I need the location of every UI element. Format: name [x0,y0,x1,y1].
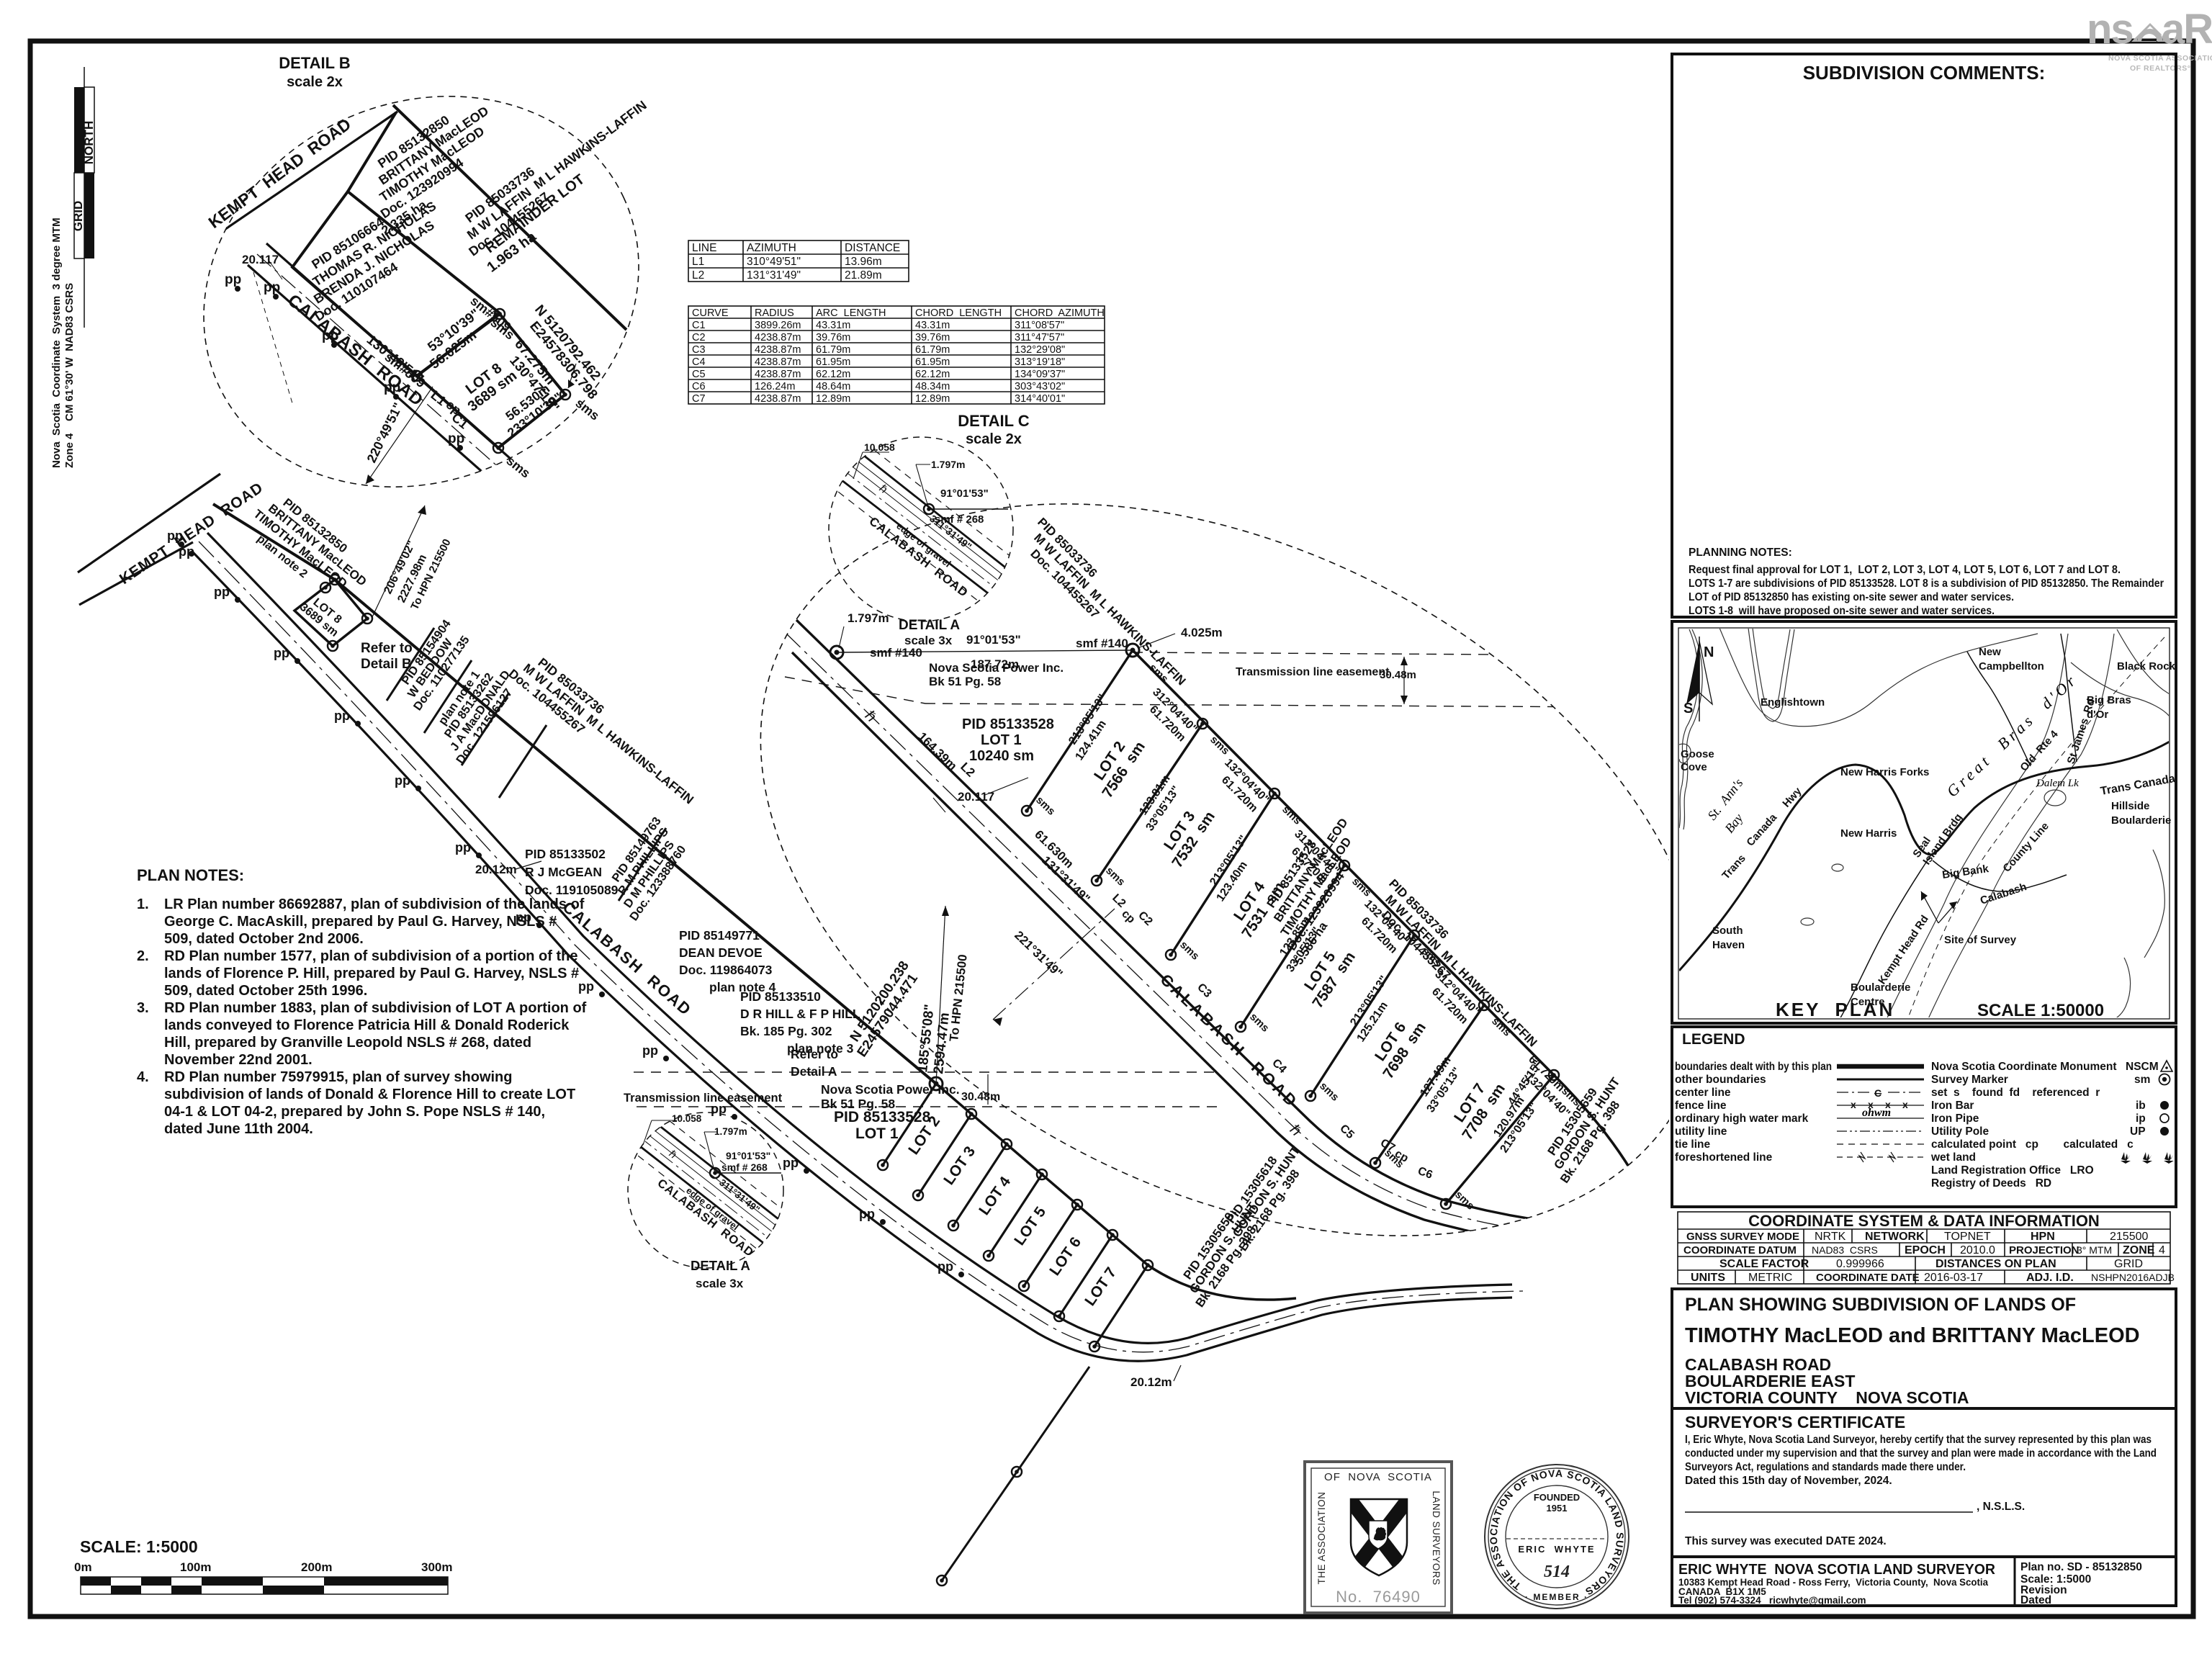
svg-text:pp: pp [455,840,471,855]
svg-text:04-1 & LOT 04-2, prepared by J: 04-1 & LOT 04-2, prepared by John S. Pop… [164,1104,545,1120]
svg-text:smf # 268: smf # 268 [721,1161,768,1173]
svg-text:20.117: 20.117 [958,790,994,804]
svg-text:VICTORIA COUNTY NOVA SCOTIA: VICTORIA COUNTY NOVA SCOTIA [1685,1388,1969,1407]
svg-text:200m: 200m [301,1560,332,1574]
svg-text:131°31'49": 131°31'49" [747,269,801,282]
svg-text:PLAN NOTES:: PLAN NOTES: [137,866,244,884]
svg-text:x: x [1902,1099,1908,1110]
svg-text:ns: ns [2087,6,2133,53]
svg-text:Dalem Lk: Dalem Lk [2036,778,2079,789]
svg-text:62.12m: 62.12m [915,369,950,380]
svg-text:LR Plan number 86692887, plan: LR Plan number 86692887, plan of subdivi… [164,896,585,912]
svg-text:NSHPN2016ADJB: NSHPN2016ADJB [2091,1272,2175,1283]
svg-text:HPN: HPN [2031,1231,2055,1243]
svg-text:pp: pp [859,1207,875,1221]
svg-text:I, Eric Whyte, Nova Scotia Lan: I, Eric Whyte, Nova Scotia Land Surveyor… [1685,1434,2152,1446]
svg-text:pp: pp [274,646,289,660]
svg-text:R J McGEAN: R J McGEAN [525,865,602,879]
svg-text:SCALE 1:50000: SCALE 1:50000 [1977,1001,2104,1020]
svg-text:1.797m: 1.797m [714,1126,747,1137]
svg-text:x: x [1851,1099,1856,1110]
svg-text:smf #140: smf #140 [870,646,922,660]
svg-text:LAND SURVEYORS: LAND SURVEYORS [1431,1491,1442,1585]
svg-text:pp: pp [938,1259,953,1274]
svg-text:10240 sm: 10240 sm [969,748,1034,764]
svg-text:OF REALTORS°: OF REALTORS° [2130,64,2190,73]
svg-text:Nova Scotia Power Inc.: Nova Scotia Power Inc. [821,1082,960,1097]
svg-text:PID 85149771: PID 85149771 [679,928,760,943]
svg-text:C4: C4 [692,356,706,368]
svg-text:LOT 1: LOT 1 [855,1125,899,1142]
svg-text:3899.26m: 3899.26m [755,320,801,331]
svg-text:91°01'53": 91°01'53" [726,1150,770,1161]
svg-text:310°49'51": 310°49'51" [747,256,801,268]
svg-text:NSCM: NSCM [2126,1061,2159,1073]
svg-text:, N.S.L.S.: , N.S.L.S. [1977,1501,2025,1513]
svg-text:CHORD AZIMUTH: CHORD AZIMUTH [1015,307,1105,319]
svg-text:pp: pp [334,709,350,723]
svg-text:2.: 2. [137,948,149,964]
svg-text:LOT of PID 85132850 has existi: LOT of PID 85132850 has existing on-site… [1689,591,2014,603]
svg-text:C6: C6 [692,381,706,392]
svg-text:pp: pp [578,979,594,994]
svg-text:43.31m: 43.31m [915,320,950,331]
svg-text:PID 85133528: PID 85133528 [834,1109,931,1125]
svg-text:COORDINATE DATE: COORDINATE DATE [1816,1272,1920,1284]
svg-text:126.24m: 126.24m [755,381,795,392]
svg-text:30.48m: 30.48m [961,1091,1000,1103]
svg-text:RADIUS: RADIUS [755,307,794,319]
svg-text:4.: 4. [137,1069,149,1085]
svg-text:300m: 300m [421,1560,452,1574]
svg-text:Registry of Deeds RD: Registry of Deeds RD [1931,1177,2051,1190]
svg-text:C1: C1 [692,320,706,331]
svg-text:Utility Pole: Utility Pole [1931,1125,1989,1138]
svg-text:61.95m: 61.95m [915,356,950,368]
svg-text:Englishtown: Englishtown [1761,696,1825,709]
svg-text:48.64m: 48.64m [816,381,850,392]
svg-text:New: New [1979,646,2001,658]
svg-text:SUBDIVISION COMMENTS:: SUBDIVISION COMMENTS: [1803,62,2046,84]
svg-text:509, dated October 25th 1996.: 509, dated October 25th 1996. [164,983,367,999]
svg-text:Black Rock: Black Rock [2117,660,2176,673]
svg-text:pp: pp [783,1156,799,1170]
svg-text:Campbellton: Campbellton [1979,660,2044,673]
svg-text:ohwm: ohwm [1862,1107,1891,1119]
svg-text:PLAN SHOWING SUBDIVISION OF LA: PLAN SHOWING SUBDIVISION OF LANDS OF [1685,1295,2076,1315]
svg-text:132°29'08": 132°29'08" [1015,344,1065,356]
svg-text:George C. MacAskill, prepared: George C. MacAskill, prepared by Paul G.… [164,914,557,930]
svg-text:Goose: Goose [1681,748,1714,760]
svg-text:RD Plan number 75979915, plan: RD Plan number 75979915, plan of survey … [164,1069,513,1085]
svg-text:12.89m: 12.89m [915,393,950,405]
svg-text:10.058: 10.058 [864,441,895,453]
svg-text:4.025m: 4.025m [1181,626,1223,639]
svg-text:fence line: fence line [1675,1100,1727,1112]
svg-text:Hillside: Hillside [2111,800,2149,812]
svg-text:61.95m: 61.95m [816,356,850,368]
svg-text:Iron Bar: Iron Bar [1931,1100,1974,1112]
svg-text:91°01'53": 91°01'53" [966,633,1021,647]
svg-text:314°40'01": 314°40'01" [1015,393,1065,405]
svg-text:LEGEND: LEGEND [1682,1031,1745,1048]
svg-text:SCALE FACTOR: SCALE FACTOR [1719,1258,1809,1270]
svg-text:subdivision of lands of Donald: subdivision of lands of Donald & Florenc… [164,1087,575,1102]
svg-text:134°09'37": 134°09'37" [1015,369,1065,380]
svg-text:Transmission line easement: Transmission line easement [1236,666,1390,678]
svg-text:pp: pp [167,529,183,543]
svg-text:4238.87m: 4238.87m [755,369,801,380]
svg-text:PROJECTION: PROJECTION [2009,1244,2080,1256]
svg-text:Tel (902) 574-3324 ricwhyte@: Tel (902) 574-3324 ricwhyte@gmail.com [1678,1595,1866,1606]
svg-text:Haven: Haven [1712,939,1745,951]
svg-text:20.12m: 20.12m [1130,1375,1172,1389]
svg-text:Nova Scotia Coordinate Monumen: Nova Scotia Coordinate Monument [1931,1061,2117,1073]
svg-text:Bk 51 Pg. 58: Bk 51 Pg. 58 [929,675,1001,688]
svg-text:lands conveyed to Florence Pat: lands conveyed to Florence Patricia Hill… [164,1017,570,1033]
svg-text:Dated: Dated [2020,1594,2051,1606]
svg-text:Nova Scotia Coordinate Syst: Nova Scotia Coordinate System 3 degree M… [50,217,63,468]
svg-text:509, dated October 2nd 2006.: 509, dated October 2nd 2006. [164,931,364,947]
svg-text:20.12m: 20.12m [475,863,517,876]
svg-text:30.48m: 30.48m [1380,669,1416,681]
svg-text:CURVE: CURVE [692,307,729,319]
svg-text:RD Plan number 1883, plan of s: RD Plan number 1883, plan of subdivision… [164,1000,587,1016]
svg-text:43.31m: 43.31m [816,320,850,331]
svg-text:DETAIL A: DETAIL A [691,1258,750,1273]
svg-text:LINE: LINE [692,242,716,254]
svg-text:lands of Florence P. Hill, pre: lands of Florence P. Hill, prepared by P… [164,966,579,981]
svg-text:311°47'57": 311°47'57" [1015,332,1064,343]
svg-text:4238.87m: 4238.87m [755,393,801,405]
svg-text:13.96m: 13.96m [845,256,882,268]
svg-text:scale 3x: scale 3x [696,1277,744,1290]
svg-text:ADJ. I.D.: ADJ. I.D. [2026,1272,2074,1284]
svg-text:aR: aR [2162,6,2212,53]
svg-text:KEY PLAN: KEY PLAN [1776,999,1894,1020]
svg-text:NRTK: NRTK [1815,1231,1846,1243]
svg-text:Site of Survey: Site of Survey [1944,934,2017,946]
svg-text:D R HILL & F P HILL: D R HILL & F P HILL [740,1007,860,1021]
svg-text:39.76m: 39.76m [915,332,950,343]
svg-text:Doc. 119864073: Doc. 119864073 [679,963,773,977]
svg-text:UNITS: UNITS [1691,1272,1725,1284]
svg-text:COORDINATE DATUM: COORDINATE DATUM [1683,1244,1797,1256]
svg-text:21.89m: 21.89m [845,269,882,282]
svg-text:4238.87m: 4238.87m [755,356,801,368]
svg-text:South: South [1712,925,1743,937]
svg-text:PID 85133502: PID 85133502 [525,847,606,861]
svg-text:PID 85133528: PID 85133528 [962,716,1054,732]
svg-text:Iron Pipe: Iron Pipe [1931,1112,1979,1125]
svg-text:DETAIL A: DETAIL A [899,618,960,633]
svg-text:DISTANCE: DISTANCE [845,242,900,254]
svg-text:OF NOVA SCOTIA: OF NOVA SCOTIA [1324,1471,1432,1483]
svg-text:100m: 100m [180,1560,211,1574]
svg-text:SCALE: 1:5000: SCALE: 1:5000 [80,1537,198,1556]
svg-text:pp: pp [448,431,464,446]
svg-text:UP: UP [2130,1125,2146,1138]
svg-text:boundaries dealt with by this: boundaries dealt with by this plan [1675,1061,1832,1073]
svg-text:FOUNDED: FOUNDED [1534,1492,1580,1503]
svg-text:1951: 1951 [1547,1503,1568,1514]
svg-text:C5: C5 [692,369,706,380]
svg-text:215500: 215500 [2110,1231,2148,1243]
svg-text:Refer to: Refer to [361,641,413,656]
svg-text:0m: 0m [74,1560,92,1574]
svg-text:61.79m: 61.79m [816,344,850,356]
svg-text:12.89m: 12.89m [816,393,850,405]
svg-text:Doc. 119105089: Doc. 119105089 [525,883,619,897]
svg-text:Refer to: Refer to [791,1047,838,1061]
svg-text:4238.87m: 4238.87m [755,332,801,343]
svg-text:ERIC WHYTE: ERIC WHYTE [1518,1544,1595,1555]
svg-text:C2: C2 [692,332,706,343]
svg-text:November 22nd 2001.: November 22nd 2001. [164,1052,313,1068]
svg-text:PID 85133510: PID 85133510 [740,989,821,1004]
svg-text:303°43'02": 303°43'02" [1015,381,1065,392]
svg-text:ordinary high water mark: ordinary high water mark [1675,1112,1809,1125]
svg-text:Boularderie: Boularderie [2111,814,2171,827]
svg-text:2010.0: 2010.0 [1960,1244,1995,1256]
svg-text:Bk. 185 Pg. 302: Bk. 185 Pg. 302 [740,1024,832,1038]
svg-text:1.: 1. [137,896,149,912]
svg-text:NETWORK: NETWORK [1865,1231,1925,1243]
svg-text:313°19'18": 313°19'18" [1015,356,1065,368]
svg-text:S: S [1683,701,1693,716]
svg-text:conducted under my supervision: conducted under my supervision and that … [1685,1447,2157,1460]
svg-text:62.12m: 62.12m [816,369,850,380]
svg-text:20.117: 20.117 [242,253,279,266]
svg-text:GRID: GRID [71,201,85,232]
svg-text:set s found fd referen: set s found fd referenced r [1931,1087,2100,1099]
svg-text:TIMOTHY MacLEOD and BRITTANY M: TIMOTHY MacLEOD and BRITTANY MacLEOD [1685,1324,2140,1347]
svg-text:LOTS 1-8 will have proposed o: LOTS 1-8 will have proposed on-site sewe… [1689,605,1995,617]
svg-text:tie line: tie line [1675,1138,1710,1151]
svg-text:Detail B: Detail B [361,657,412,672]
svg-text:48.34m: 48.34m [915,381,950,392]
svg-text:1.797m: 1.797m [848,611,889,625]
svg-text:LOTS 1-7 are subdivisions of P: LOTS 1-7 are subdivisions of PID 8513352… [1689,577,2164,590]
svg-text:TOPNET: TOPNET [1944,1231,1991,1243]
svg-text:Land Registration Office LRO: Land Registration Office LRO [1931,1164,2094,1177]
svg-text:center line: center line [1675,1087,1731,1099]
svg-text:scale 2x: scale 2x [966,431,1022,447]
svg-text:CHORD LENGTH: CHORD LENGTH [915,307,1002,319]
svg-text:pp: pp [264,280,280,295]
svg-text:pp: pp [395,773,410,788]
svg-text:smf #140: smf #140 [1076,637,1128,650]
svg-text:Zone 4 CM 61°30' W NAD83 C: Zone 4 CM 61°30' W NAD83 CSRS [63,283,76,468]
svg-text:· MEMBER ·: · MEMBER · [1525,1592,1588,1602]
svg-text:Request final approval for LOT: Request final approval for LOT 1, LOT 2,… [1689,564,2121,576]
svg-text:AZIMUTH: AZIMUTH [747,242,796,254]
svg-text:other boundaries: other boundaries [1675,1074,1766,1086]
svg-text:NORTH: NORTH [82,121,96,164]
svg-text:ip: ip [2136,1112,2146,1125]
svg-text:Transmission line easement: Transmission line easement [624,1092,783,1105]
svg-text:61.79m: 61.79m [915,344,950,356]
svg-text:C3: C3 [692,344,706,356]
svg-text:DETAIL B: DETAIL B [279,54,350,72]
svg-text:L1: L1 [692,256,704,268]
svg-text:514: 514 [1544,1563,1570,1581]
svg-text:L2: L2 [692,269,704,282]
svg-text:METRIC: METRIC [1748,1272,1792,1284]
svg-text:3.: 3. [137,1000,149,1016]
svg-text:pp: pp [225,272,241,287]
svg-text:C7: C7 [692,393,706,405]
svg-text:This survey was executed DATE: This survey was executed DATE 2024. [1685,1535,1887,1547]
svg-text:39.76m: 39.76m [816,332,850,343]
svg-text:wet land: wet land [1930,1151,1976,1164]
svg-text:91°01'53": 91°01'53" [940,487,989,500]
svg-text:DISTANCES ON PLAN: DISTANCES ON PLAN [1935,1258,2056,1270]
svg-text:pp: pp [214,585,230,599]
svg-text:GNSS SURVEY MODE: GNSS SURVEY MODE [1686,1231,1799,1243]
svg-text:PLANNING NOTES:: PLANNING NOTES: [1689,547,1792,559]
svg-text:pp: pp [642,1043,658,1058]
svg-text:N: N [1704,644,1714,660]
svg-text:1.797m: 1.797m [931,459,965,470]
svg-text:No. 76490: No. 76490 [1336,1588,1421,1606]
svg-text:Surveyors Act, regulations and: Surveyors Act, regulations and standards… [1685,1461,1966,1473]
svg-text:foreshortened line: foreshortened line [1675,1151,1773,1164]
svg-text:SURVEYOR'S CERTIFICATE: SURVEYOR'S CERTIFICATE [1685,1413,1905,1431]
svg-text:Nova Scotia Power Inc.: Nova Scotia Power Inc. [929,661,1064,675]
svg-text:ARC LENGTH: ARC LENGTH [816,307,886,319]
svg-text:ERIC WHYTE NOVA SCOTIA LAND S: ERIC WHYTE NOVA SCOTIA LAND SURVEYOR [1678,1562,1996,1578]
svg-text:2016-03-17: 2016-03-17 [1924,1272,1983,1284]
svg-text:Hill, prepared by Granville Le: Hill, prepared by Granville Leopold NSLS… [164,1035,531,1051]
svg-text:Survey Marker: Survey Marker [1931,1074,2008,1086]
svg-text:Cove: Cove [1681,761,1707,773]
svg-text:New Harris Forks: New Harris Forks [1840,766,1929,778]
svg-text:3° MTM: 3° MTM [2077,1244,2112,1256]
svg-text:dated June 11th 2004.: dated June 11th 2004. [164,1121,313,1137]
svg-text:calculated point cp c: calculated point cp calculated c [1931,1138,2134,1151]
svg-text:EPOCH: EPOCH [1905,1244,1946,1256]
svg-text:311°08'57": 311°08'57" [1015,320,1064,331]
svg-text:LOT 1: LOT 1 [981,732,1022,748]
svg-text:scale 3x: scale 3x [904,634,953,647]
svg-text:NAD83 CSRS: NAD83 CSRS [1812,1244,1878,1256]
svg-text:4: 4 [2159,1244,2165,1256]
svg-text:Detail A: Detail A [791,1064,837,1079]
svg-text:RD Plan number 1577, plan of s: RD Plan number 1577, plan of subdivision… [164,948,578,964]
svg-text:ib: ib [2136,1100,2146,1112]
svg-text:scale 2x: scale 2x [287,74,343,90]
svg-text:THE ASSOCIATION: THE ASSOCIATION [1316,1492,1327,1585]
svg-text:COORDINATE SYSTEM & DATA INFOR: COORDINATE SYSTEM & DATA INFORMATION [1748,1212,2100,1230]
svg-text:New Harris: New Harris [1840,827,1897,840]
svg-text:DEAN DEVOE: DEAN DEVOE [679,945,763,960]
svg-text:Plan no. SD - 85132850: Plan no. SD - 85132850 [2020,1561,2142,1573]
svg-text:10.058: 10.058 [672,1113,702,1124]
svg-text:4238.87m: 4238.87m [755,344,801,356]
svg-text:ZONE: ZONE [2123,1244,2155,1256]
svg-text:0.999966: 0.999966 [1836,1258,1884,1270]
svg-text:GRID: GRID [2114,1258,2143,1270]
svg-text:DETAIL C: DETAIL C [958,412,1030,430]
svg-text:C: C [1874,1087,1881,1099]
svg-text:Dated this 15th day of Novembe: Dated this 15th day of November, 2024. [1685,1475,1892,1487]
svg-text:utility line: utility line [1675,1125,1727,1138]
svg-text:sm: sm [2134,1074,2150,1086]
